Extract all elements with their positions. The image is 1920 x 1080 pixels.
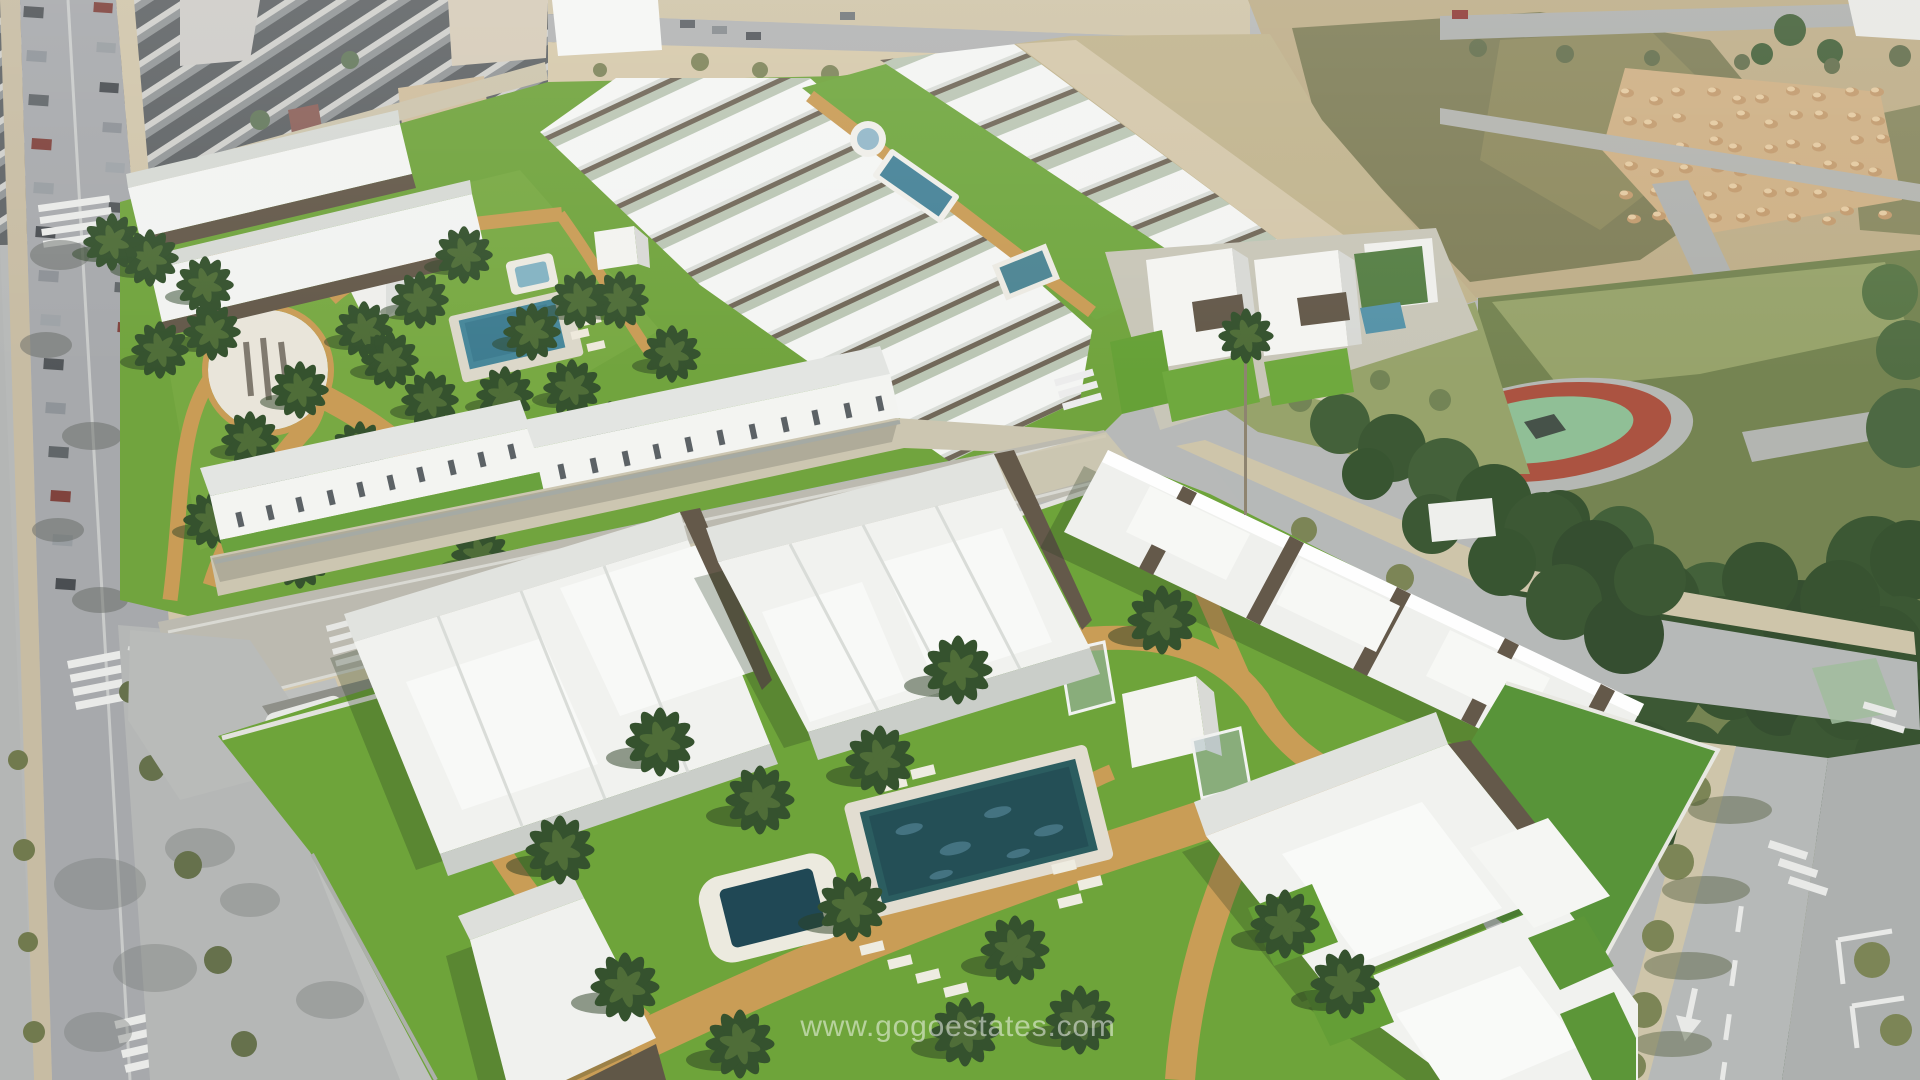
svg-text:www.gogoestates.com: www.gogoestates.com	[799, 1010, 1115, 1043]
